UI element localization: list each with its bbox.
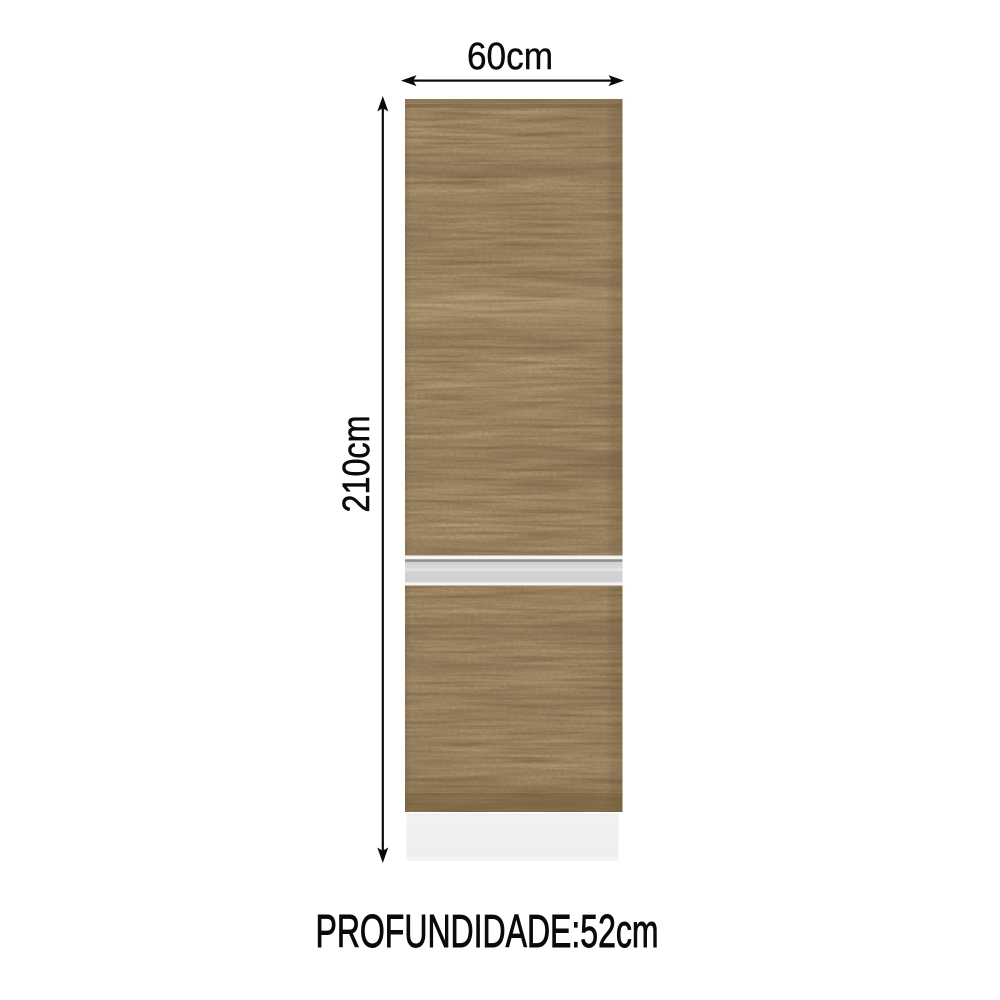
svg-text:60cm: 60cm (467, 36, 553, 78)
svg-text:PROFUNDIDADE:52cm: PROFUNDIDADE:52cm (316, 905, 659, 957)
svg-text:210cm: 210cm (336, 416, 378, 513)
